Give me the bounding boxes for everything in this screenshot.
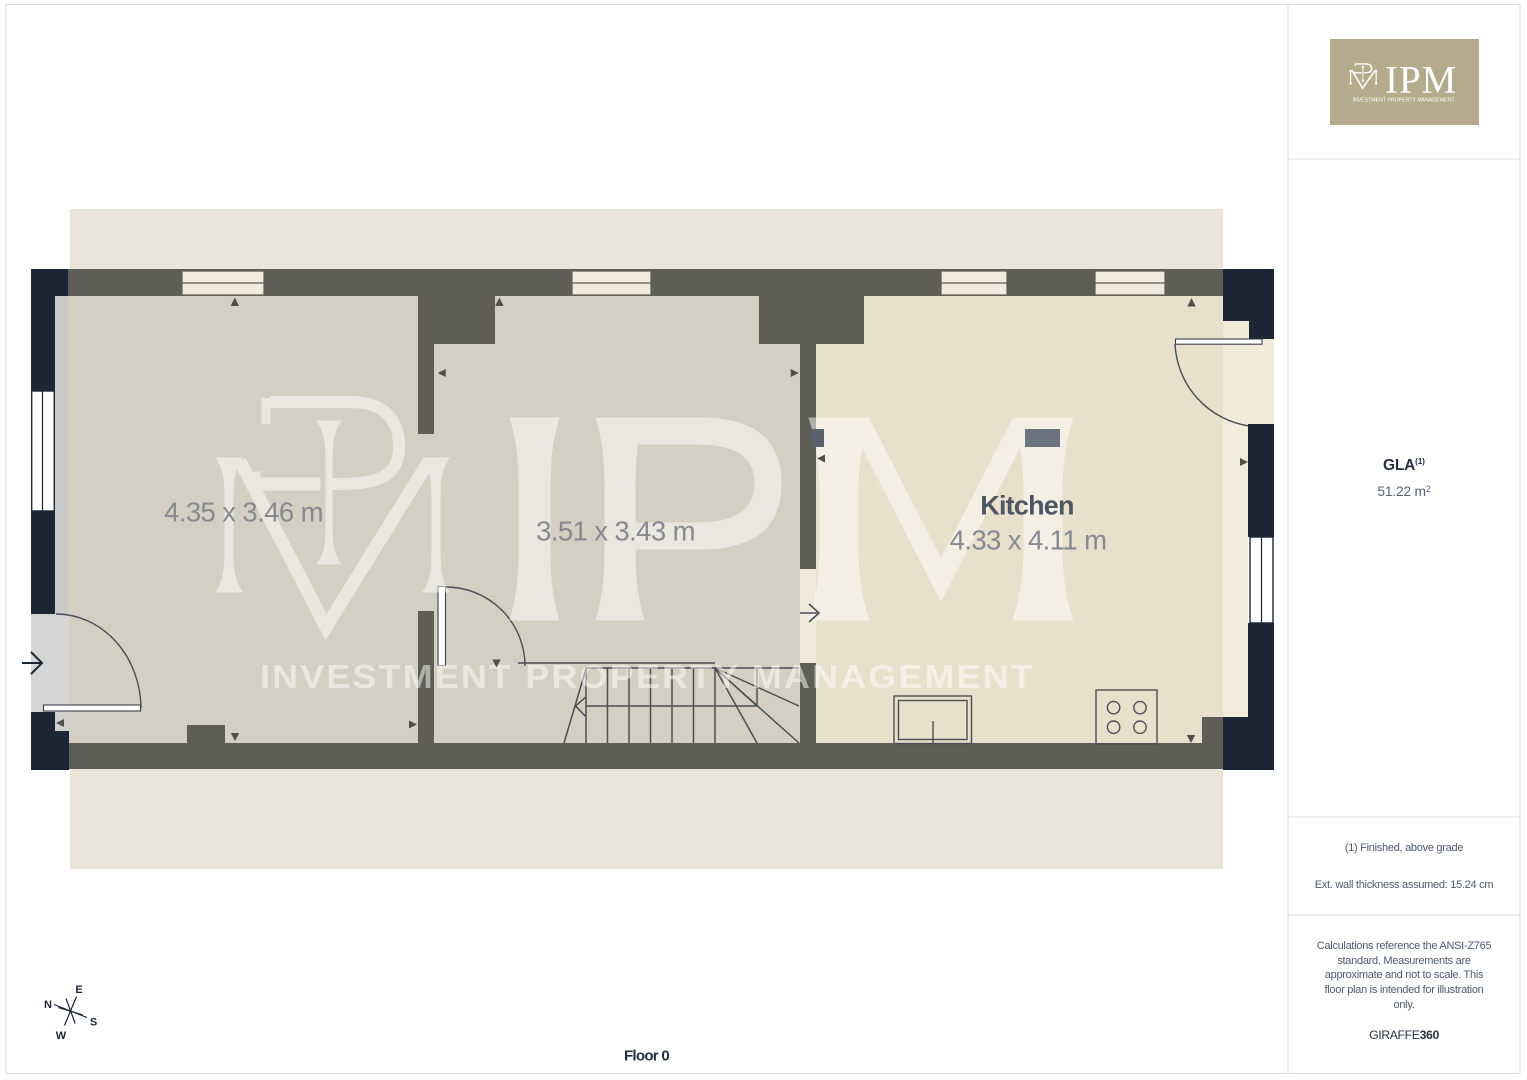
svg-text:4.35 x 3.46 m: 4.35 x 3.46 m	[164, 497, 323, 528]
svg-text:Floor 0: Floor 0	[624, 1048, 669, 1065]
svg-text:S: S	[90, 1017, 97, 1029]
svg-text:IPM: IPM	[1385, 59, 1457, 102]
svg-text:INVESTMENT PROPERTY MANAGEMENT: INVESTMENT PROPERTY MANAGEMENT	[1353, 98, 1455, 104]
svg-text:3.51 x 3.43 m: 3.51 x 3.43 m	[536, 516, 695, 547]
svg-text:4.33 x 4.11 m: 4.33 x 4.11 m	[950, 525, 1107, 556]
svg-text:INVESTMENT PROPERTY MANAGEMENT: INVESTMENT PROPERTY MANAGEMENT	[260, 658, 1035, 695]
svg-text:N: N	[44, 999, 52, 1011]
svg-text:E: E	[75, 984, 82, 996]
svg-text:W: W	[56, 1030, 67, 1042]
svg-text:Kitchen: Kitchen	[980, 491, 1073, 521]
